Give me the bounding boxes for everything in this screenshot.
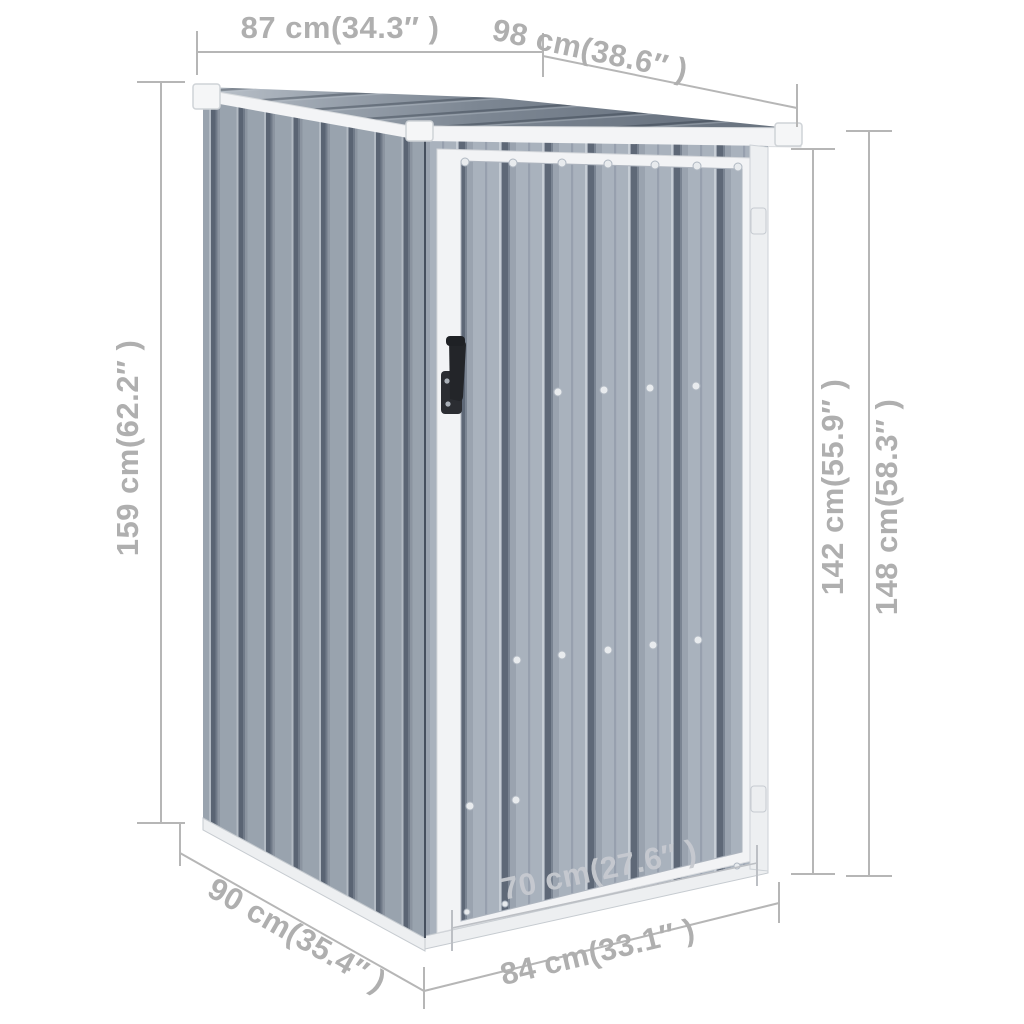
door-hinge-bottom [751,786,766,812]
dim-label-159: 159 cm(62.2″ ) [110,340,145,557]
roof-cap-back-left [193,84,220,109]
rivet [558,651,566,659]
door-hinge-top [751,208,766,234]
rivet [558,159,566,167]
rivet [649,641,657,649]
dim-label-142: 142 cm(55.9″ ) [815,379,850,596]
rivet [554,388,562,396]
rivet [461,158,469,166]
rivet [604,646,612,654]
rivet [692,382,700,390]
rivet [734,163,742,171]
rivet [646,384,654,392]
dim-label-148: 148 cm(58.3″ ) [869,399,904,616]
roof-cap-front-left [406,121,433,141]
dim-label-98: 98 cm(38.6″ ) [489,12,691,88]
rivet [604,160,612,168]
rivet [693,162,701,170]
side-wall [203,101,425,938]
rivet [509,159,517,167]
right-corner-trim [750,145,768,871]
rivet [513,656,521,664]
rivet [466,802,474,810]
rivet [600,386,608,394]
rivet [651,161,659,169]
door-panel [461,161,742,921]
product-dimension-image: 87 cm(34.3″ ) 98 cm(38.6″ ) 159 cm(62.2″… [0,0,1024,1024]
dim-label-87: 87 cm(34.3″ ) [241,10,440,45]
rivet [694,636,702,644]
shed [193,84,802,951]
rivet [464,909,470,915]
rivet [512,796,520,804]
shed-diagram-canvas: 87 cm(34.3″ ) 98 cm(38.6″ ) 159 cm(62.2″… [0,0,1024,1024]
